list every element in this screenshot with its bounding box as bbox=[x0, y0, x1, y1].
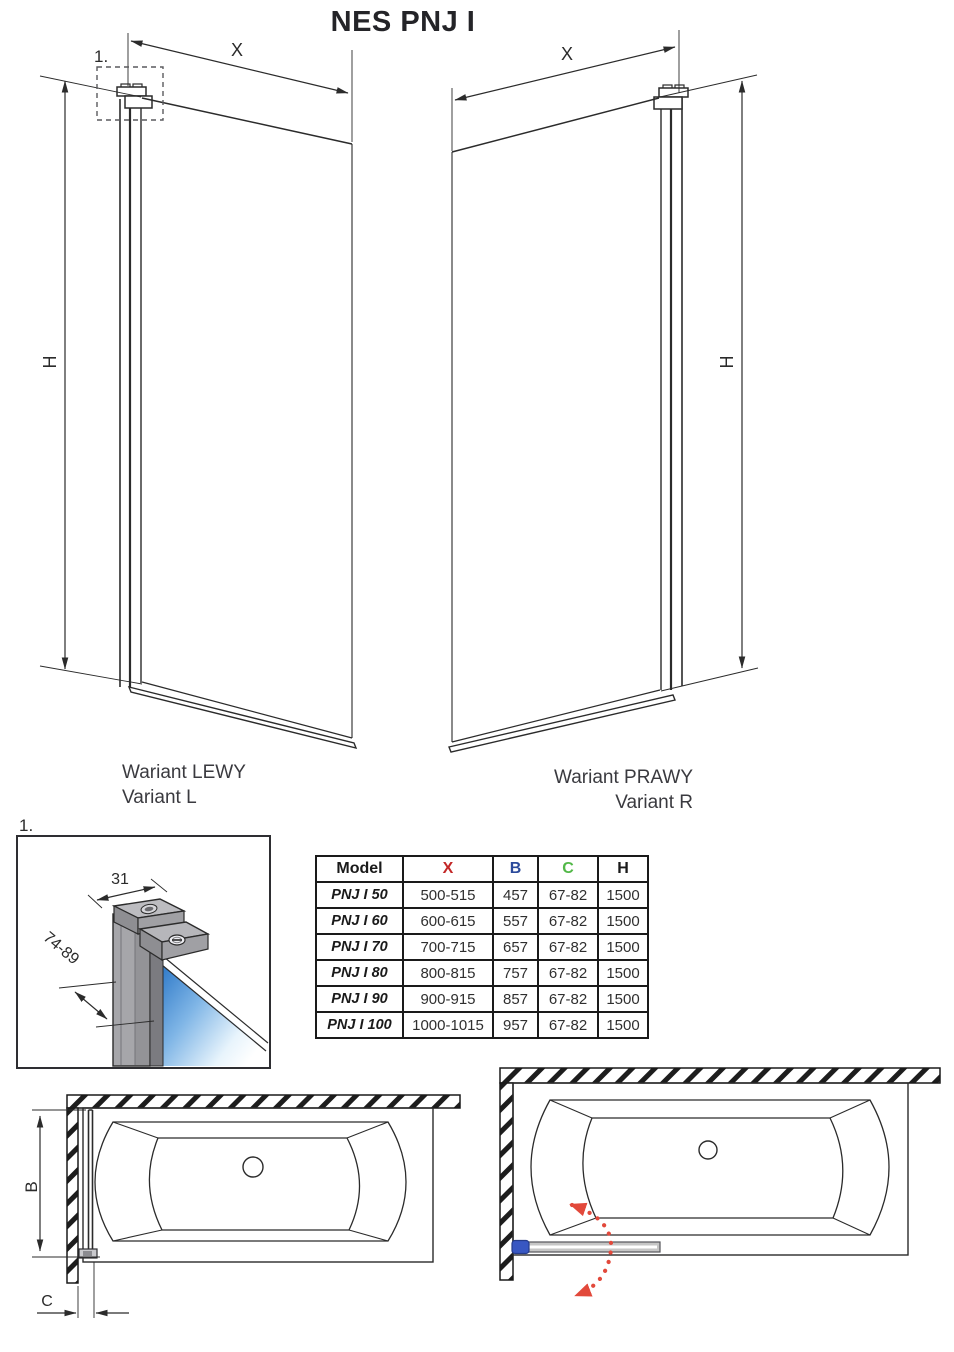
spec-table-header-row: Model X B C H bbox=[316, 856, 648, 882]
dim-x-label-right: X bbox=[561, 44, 573, 64]
bathtub bbox=[531, 1100, 889, 1235]
drain-icon bbox=[699, 1141, 717, 1159]
variant-right-caption-en: Variant R bbox=[493, 790, 693, 815]
glass-panel-plan bbox=[79, 1110, 97, 1258]
wall-top-hatched bbox=[67, 1095, 460, 1108]
cell-model: PNJ I 90 bbox=[316, 986, 403, 1012]
cell-x: 900-915 bbox=[403, 986, 493, 1012]
cell-b: 457 bbox=[493, 882, 538, 908]
dim-b-label: B bbox=[22, 1181, 41, 1192]
page: NES PNJ I bbox=[0, 0, 954, 1352]
hinge-icon bbox=[512, 1241, 529, 1254]
variant-right-drawing: X H bbox=[449, 30, 758, 752]
top-bracket bbox=[654, 85, 688, 109]
cell-c: 67-82 bbox=[538, 882, 598, 908]
dim-h-label-left: H bbox=[40, 356, 60, 369]
tub-apron bbox=[513, 1083, 908, 1255]
cell-h: 1500 bbox=[598, 934, 648, 960]
cell-model: PNJ I 50 bbox=[316, 882, 403, 908]
glass-pane bbox=[452, 98, 660, 742]
glass-pane bbox=[142, 98, 352, 738]
cell-x: 700-715 bbox=[403, 934, 493, 960]
detail-view: 1. bbox=[17, 816, 270, 1068]
col-header-x: X bbox=[403, 856, 493, 882]
technical-drawing: X H 1. bbox=[0, 0, 954, 1352]
dim-h-label-right: H bbox=[717, 356, 737, 369]
table-row: PNJ I 90 900-915 857 67-82 1500 bbox=[316, 986, 648, 1012]
cell-c: 67-82 bbox=[538, 986, 598, 1012]
wall-top-hatched bbox=[500, 1068, 940, 1083]
dim-31-label: 31 bbox=[111, 871, 129, 888]
cell-x: 800-815 bbox=[403, 960, 493, 986]
table-row: PNJ I 70 700-715 657 67-82 1500 bbox=[316, 934, 648, 960]
cell-h: 1500 bbox=[598, 960, 648, 986]
cell-c: 67-82 bbox=[538, 1012, 598, 1038]
variant-left-caption: Wariant LEWY Variant L bbox=[122, 760, 246, 810]
col-header-h: H bbox=[598, 856, 648, 882]
cell-x: 600-615 bbox=[403, 908, 493, 934]
cell-c: 67-82 bbox=[538, 934, 598, 960]
variant-right-caption: Wariant PRAWY Variant R bbox=[493, 765, 693, 815]
table-row: PNJ I 60 600-615 557 67-82 1500 bbox=[316, 908, 648, 934]
cell-b: 557 bbox=[493, 908, 538, 934]
bottom-sill bbox=[449, 695, 675, 752]
cell-x: 500-515 bbox=[403, 882, 493, 908]
drain-icon bbox=[243, 1157, 263, 1177]
variant-left-caption-en: Variant L bbox=[122, 785, 246, 810]
plan-view-left: B C bbox=[22, 1095, 460, 1318]
bathtub bbox=[95, 1122, 406, 1241]
cell-b: 757 bbox=[493, 960, 538, 986]
cell-h: 1500 bbox=[598, 908, 648, 934]
col-header-b: B bbox=[493, 856, 538, 882]
col-header-model: Model bbox=[316, 856, 403, 882]
variant-left-drawing: X H 1. bbox=[40, 33, 356, 748]
cell-c: 67-82 bbox=[538, 960, 598, 986]
cell-h: 1500 bbox=[598, 986, 648, 1012]
cell-h: 1500 bbox=[598, 1012, 648, 1038]
plan-view-right bbox=[500, 1068, 940, 1295]
dim-x-label-left: X bbox=[231, 40, 243, 60]
table-row: PNJ I 80 800-815 757 67-82 1500 bbox=[316, 960, 648, 986]
cell-b: 957 bbox=[493, 1012, 538, 1038]
spec-table: Model X B C H PNJ I 50 500-515 457 67-82… bbox=[315, 855, 649, 1039]
cell-model: PNJ I 100 bbox=[316, 1012, 403, 1038]
variant-left-caption-pl: Wariant LEWY bbox=[122, 760, 246, 785]
variant-right-caption-pl: Wariant PRAWY bbox=[493, 765, 693, 790]
wall-left-hatched bbox=[500, 1083, 513, 1280]
col-header-c: C bbox=[538, 856, 598, 882]
cell-model: PNJ I 80 bbox=[316, 960, 403, 986]
bottom-sill bbox=[129, 687, 356, 748]
cell-c: 67-82 bbox=[538, 908, 598, 934]
table-row: PNJ I 50 500-515 457 67-82 1500 bbox=[316, 882, 648, 908]
cell-model: PNJ I 60 bbox=[316, 908, 403, 934]
cell-b: 857 bbox=[493, 986, 538, 1012]
detail-callout-ref: 1. bbox=[94, 47, 108, 66]
dim-c-label: C bbox=[41, 1293, 53, 1310]
cell-b: 657 bbox=[493, 934, 538, 960]
detail-ref-label: 1. bbox=[19, 816, 33, 835]
cell-x: 1000-1015 bbox=[403, 1012, 493, 1038]
glass-panel-open bbox=[512, 1241, 660, 1254]
table-row: PNJ I 100 1000-1015 957 67-82 1500 bbox=[316, 1012, 648, 1038]
cell-h: 1500 bbox=[598, 882, 648, 908]
cell-model: PNJ I 70 bbox=[316, 934, 403, 960]
